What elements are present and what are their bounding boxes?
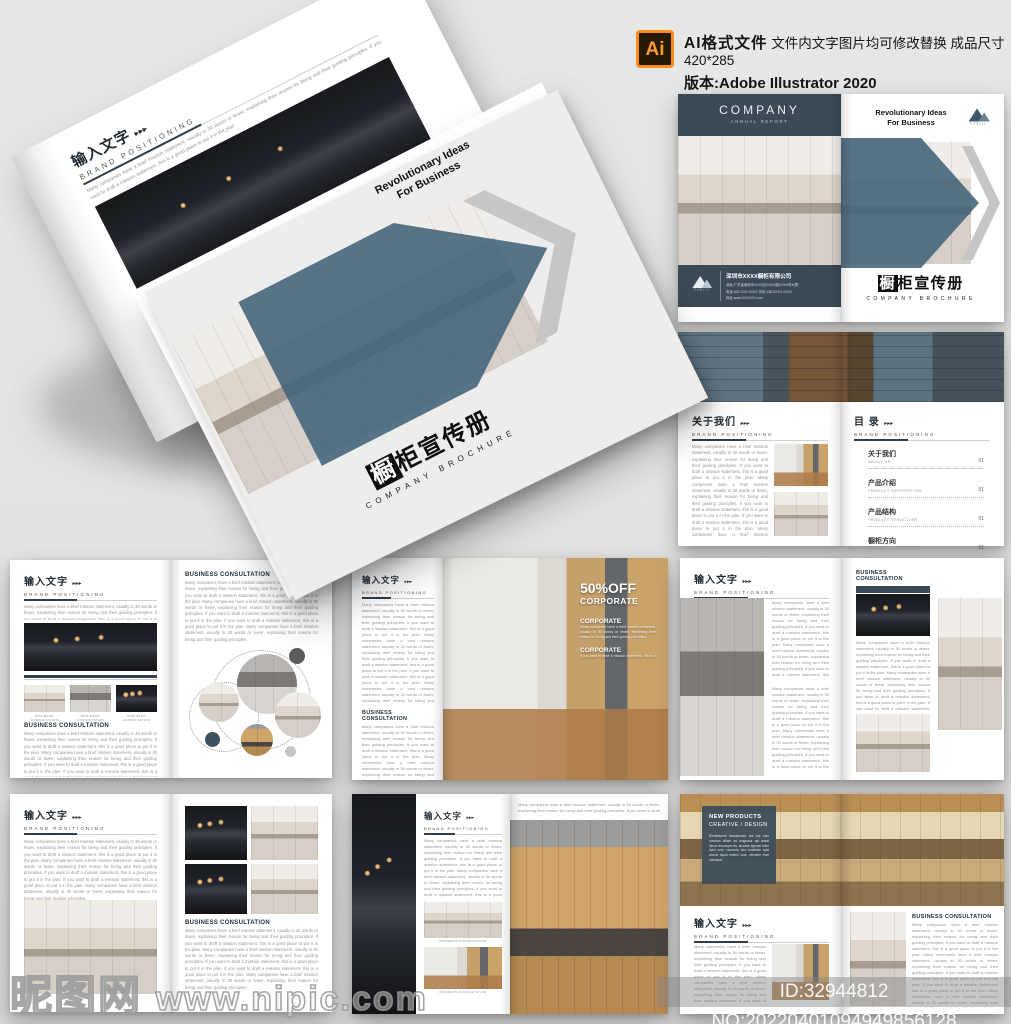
preview-header: Ai AI格式文件 文件内文字图片均可修改替换 成品尺寸420*285 版本:A… — [636, 30, 1008, 78]
heading-en: BRAND POSITIONING — [362, 590, 434, 595]
heading-en: BRAND POSITIONING — [694, 590, 829, 595]
heading-en: BRAND POSITIONING — [694, 934, 829, 939]
svg-text:PUBLIC: PUBLIC — [694, 289, 710, 292]
contact-line: 电话:400-XXX-XXXX 手机:138-XXXX-XXXX — [726, 289, 836, 294]
body-text: Many companies have a brief mission stat… — [24, 604, 157, 620]
body-text: Many companies have a brief mission stat… — [772, 600, 829, 680]
format-label: AI格式文件 — [684, 35, 768, 52]
heading-cn: 输入文字 — [24, 811, 68, 822]
body-text: Many companies have a brief mission stat… — [362, 602, 434, 706]
body-text: Many companies have a brief mission stat… — [692, 444, 768, 536]
heading-en: BRAND POSITIONING — [24, 592, 157, 597]
watermark-site-url: www.nipic.com — [156, 980, 428, 1018]
heading-arrows: ▸▸▸ — [72, 815, 81, 821]
new-products-line1: NEW PRODUCTS — [709, 814, 769, 820]
tagline-line2: For Business — [887, 118, 935, 127]
promo-overlay: 50%OFF CORPORATE CORPORATE Many companie… — [580, 580, 656, 660]
photo-circle — [241, 724, 273, 756]
spread-consult: 输入文字 ▸▸▸ BRAND POSITIONING Many companie… — [680, 558, 1004, 780]
body-text: Many companies have a brief mission stat… — [856, 640, 930, 710]
heading-en: BRAND POSITIONING — [424, 826, 502, 831]
body-text: Many companies have a brief mission stat… — [518, 802, 660, 816]
section-heading: BUSINESS CONSULTATION — [24, 723, 157, 729]
annual-report-label: ANNUAL REPORT — [678, 119, 841, 124]
mountain-logo-icon: PUBLIC — [690, 272, 714, 292]
photo-kitchen-small — [774, 492, 828, 536]
promo-section-text: Many companies have a brief mission stat… — [580, 625, 656, 639]
heading-en: BRAND POSITIONING — [692, 432, 828, 437]
photo-interior — [424, 947, 502, 989]
toc-item: 产品结构PRODUCT STRUCTURE01 — [868, 504, 984, 527]
cover-right-tagline: Revolutionary Ideas For Business — [856, 108, 966, 128]
heading-cn: 输入文字 — [24, 577, 68, 588]
promo-section-title: CORPORATE — [580, 647, 656, 654]
heading-arrows: ▸▸▸ — [742, 579, 751, 585]
watermark-id-text: ID:32944812 NO:20220401094949856128 — [711, 981, 956, 1024]
about-toc-spread: 关于我们 ▸▸▸ BRAND POSITIONING Many companie… — [678, 332, 1004, 546]
section-heading: BUSINESS CONSULTATION — [362, 710, 434, 722]
heading-arrows: ▸▸▸ — [404, 579, 412, 585]
toc-item: 产品介绍PRODUCT DESCRIPTION01 — [868, 475, 984, 498]
cover-title-rest: 柜宣传册 — [898, 275, 964, 292]
spread-brand-circles: 输入文字 ▸▸▸ BRAND POSITIONING Many companie… — [10, 560, 332, 778]
mountain-logo-icon: PUBLIC — [966, 104, 992, 126]
stock-preview-canvas: Ai AI格式文件 文件内文字图片均可修改替换 成品尺寸420*285 版本:A… — [0, 0, 1011, 1024]
heading-arrows: ▸▸▸ — [740, 421, 749, 427]
heading-cn: 关于我们 — [692, 417, 736, 428]
photo-kitchen-dark — [856, 594, 930, 636]
body-text: Many companies have a brief mission stat… — [772, 686, 829, 768]
heading-arrows: ▸▸▸ — [466, 815, 474, 821]
photo-grid-cell — [185, 864, 247, 914]
heading-arrows: ▸▸▸ — [72, 581, 81, 587]
company-name: 深圳市XXXX橱柜有限公司 — [726, 272, 836, 280]
watermark-site: 昵图网 www.nipic.com — [10, 962, 428, 1023]
cover-top-band: COMPANY ANNUAL REPORT — [678, 94, 841, 136]
photo-grid-cell — [251, 864, 318, 914]
heading-arrows: ▸▸▸ — [884, 421, 893, 427]
cover-title-en: COMPANY BROCHURE — [856, 296, 986, 302]
dot-accent — [205, 732, 220, 747]
section-heading: BUSINESS CONSULTATION — [912, 914, 998, 920]
photo-caption: BUSINESS CONSULTATION — [24, 714, 65, 722]
body-text: Many companies have a brief mission stat… — [24, 839, 157, 901]
promo-offer-sub: CORPORATE — [580, 596, 656, 606]
promo-offer: 50%OFF — [580, 580, 656, 596]
photo-caption: BUSINESS CONSULTATION — [424, 939, 502, 943]
promo-section-text: If you want to draft a mission statement… — [580, 654, 656, 660]
cover-title-boxchar: 橱 — [878, 275, 898, 292]
wardrobe-photo — [678, 332, 1004, 402]
photo-kitchen-small — [24, 685, 65, 712]
heading-cn: 输入文字 — [424, 811, 462, 821]
photo-cabinets — [680, 598, 764, 776]
new-products-line2: CREATIVE / DESIGN — [709, 822, 769, 828]
company-label: COMPANY — [678, 103, 841, 117]
photo-kitchen-tall — [938, 598, 1002, 730]
heading-arrows: ▸▸▸ — [742, 923, 751, 929]
photo-interior — [774, 444, 828, 486]
dot-accent — [289, 648, 305, 664]
photo-caption: BUSINESS CONSULTATION — [70, 714, 111, 722]
body-text: Many companies have a brief mission stat… — [24, 731, 157, 777]
photo-kitchen-small — [70, 685, 111, 712]
photo-circle — [199, 682, 239, 722]
heading-cn: 目 录 — [854, 417, 880, 428]
promo-section-title: CORPORATE — [580, 618, 656, 625]
spread-promo: 输入文字 ▸▸▸ BRAND POSITIONING Many companie… — [352, 558, 668, 780]
heading-en: BRAND POSITIONING — [24, 826, 157, 831]
photo-kitchen-small — [856, 714, 930, 772]
photo-grid-cell — [251, 806, 318, 860]
photo-kitchen-small — [116, 685, 157, 712]
dot-accent — [285, 746, 296, 757]
contact-line: 网址:www.XXXXXX.com — [726, 295, 836, 300]
heading-cn: 输入文字 — [694, 575, 738, 586]
photo-caption: BUSINESS CONSULTATION — [424, 990, 502, 994]
watermark-site-cn: 昵图网 — [10, 972, 142, 1019]
cover-bottom-band: PUBLIC 深圳市XXXX橱柜有限公司 地址:广东省深圳市XXXX区XXXX路… — [678, 265, 841, 307]
heading-cn: 输入文字 — [362, 575, 400, 585]
body-text: Many companies have a brief mission stat… — [362, 724, 434, 782]
new-products-box: NEW PRODUCTS CREATIVE / DESIGN Reminisce… — [702, 806, 776, 884]
photo-kitchen-dark — [24, 623, 157, 671]
photo-grid-cell — [185, 806, 247, 860]
mockup-3d: 输入文字 ▸▸▸ BRAND POSITIONING Many companie… — [0, 0, 670, 560]
photo-wood-kitchen — [510, 820, 668, 1014]
heading-arrows: ▸▸▸ — [132, 123, 149, 138]
new-products-body: Reminiscent faciusbonen aut aut unio con… — [709, 834, 769, 874]
contact-line: 地址:广东省深圳市XXXX区XXXX路XXXX号大厦 — [726, 282, 836, 287]
watermark-id-bar: ID:32944812 NO:20220401094949856128 — [657, 977, 1011, 1007]
photo-circle — [275, 692, 321, 738]
heading-en: BRAND POSITIONING — [854, 432, 990, 437]
circle-collage — [185, 646, 318, 770]
svg-text:PUBLIC: PUBLIC — [970, 121, 987, 125]
section-heading: BUSINESS CONSULTATION — [185, 920, 318, 926]
format-line: AI格式文件 文件内文字图片均可修改替换 成品尺寸420*285 — [684, 31, 1011, 68]
photo-caption: BUSINESS CONSULTATION — [116, 714, 157, 722]
cover-title-block: 橱柜宣传册 COMPANY BROCHURE — [856, 272, 986, 302]
heading-cn: 输入文字 — [694, 919, 738, 930]
photo-kitchen-small — [424, 902, 502, 938]
accent-bar — [856, 586, 930, 593]
toc-item: 橱柜方向BUSINESS DIRECTION01 — [868, 533, 984, 556]
body-text: Many companies have a brief mission stat… — [424, 838, 502, 898]
cover-spread: COMPANY ANNUAL REPORT PUBLIC 深圳市XXXX橱柜有限… — [678, 94, 1004, 322]
section-heading: BUSINESS CONSULTATION — [856, 570, 930, 582]
cover-left-photo — [678, 136, 841, 265]
version-line: 版本:Adobe Illustrator 2020 — [684, 72, 1011, 93]
toc-item: 关于我们ABOUT US01 — [868, 446, 984, 469]
tagline-line1: Revolutionary Ideas — [875, 108, 946, 117]
